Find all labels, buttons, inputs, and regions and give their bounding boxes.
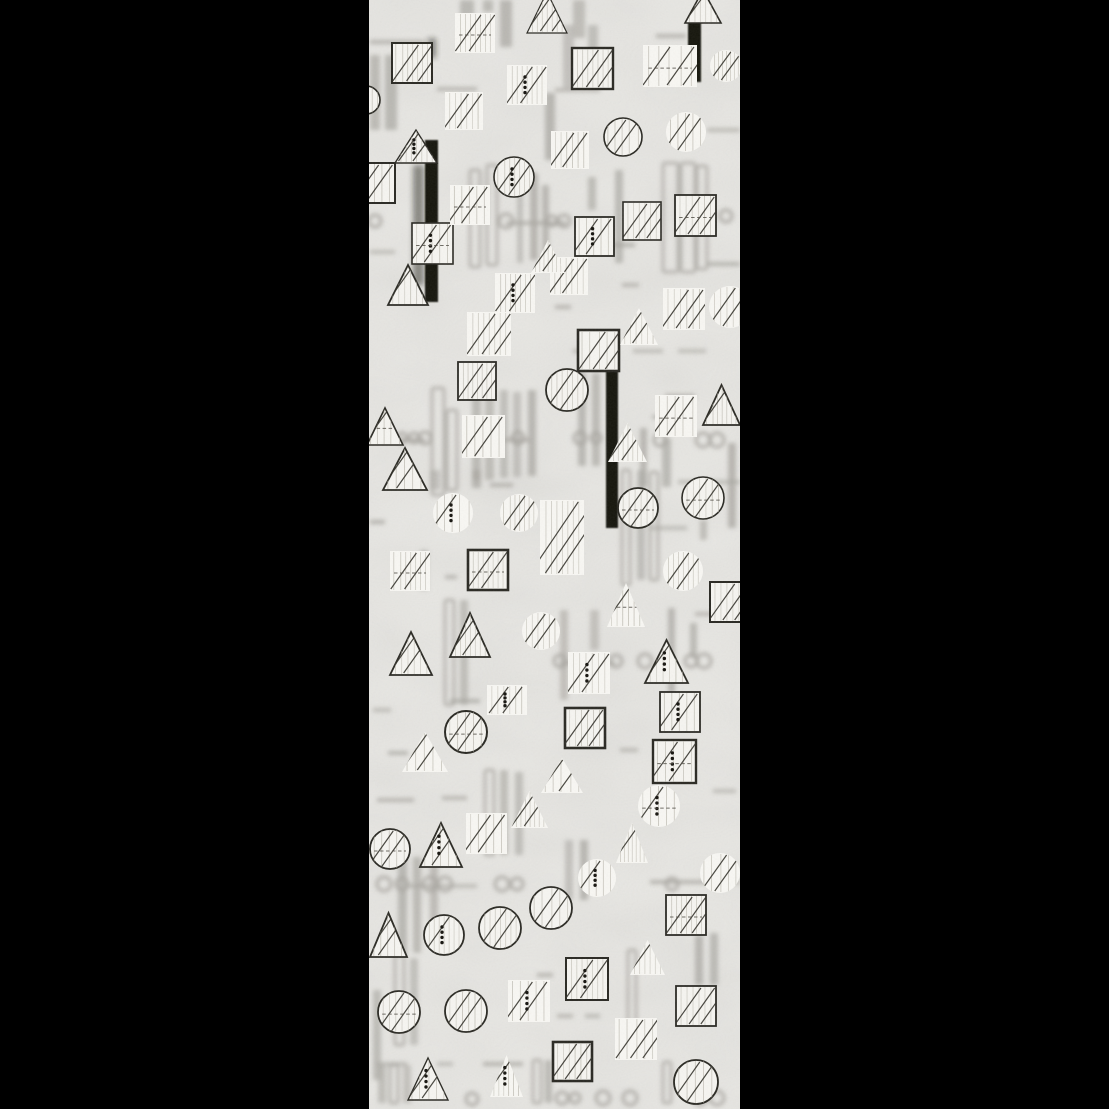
abstract-pattern-svg <box>369 0 740 1109</box>
paper-grain-overlay <box>369 0 740 1109</box>
paper-strip <box>369 0 740 1109</box>
screenshot-canvas <box>0 0 1109 1109</box>
